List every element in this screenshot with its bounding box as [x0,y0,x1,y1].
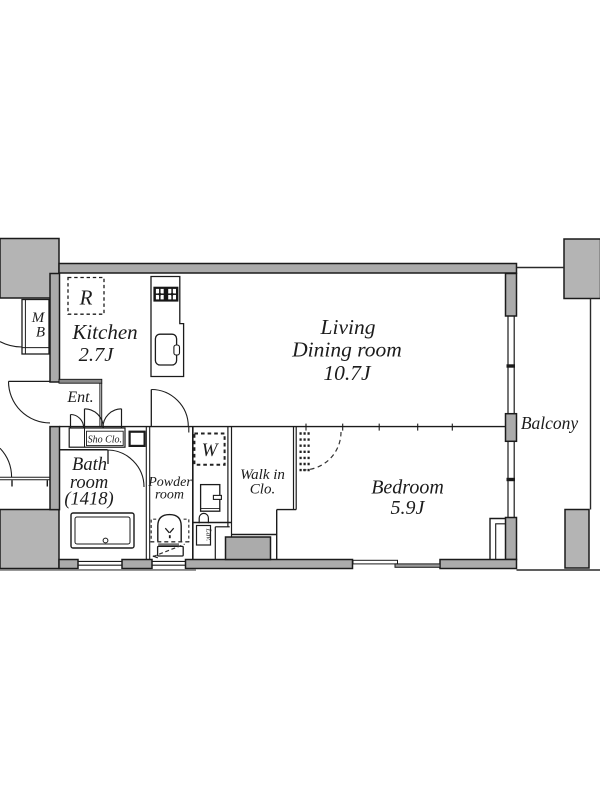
svg-text:Bath: Bath [72,455,107,475]
svg-text:room: room [155,488,184,503]
svg-text:M: M [31,310,46,326]
svg-text:Kitchen: Kitchen [71,320,137,344]
svg-text:(1418): (1418) [64,490,113,510]
svg-text:Balcony: Balcony [521,413,579,433]
svg-text:10.7J: 10.7J [323,361,372,385]
svg-text:5.9J: 5.9J [391,497,426,519]
svg-text:Lav.: Lav. [205,528,214,542]
svg-text:R: R [79,286,93,310]
svg-text:W: W [202,440,220,461]
svg-text:Sho Clo.: Sho Clo. [88,434,122,445]
svg-text:B: B [36,325,45,341]
svg-text:Clo.: Clo. [250,482,275,498]
svg-text:Living: Living [320,315,376,339]
svg-text:Dining room: Dining room [291,338,402,362]
svg-text:Ent.: Ent. [66,389,93,406]
svg-text:Bedroom: Bedroom [371,477,444,499]
svg-text:2.7J: 2.7J [79,344,115,366]
